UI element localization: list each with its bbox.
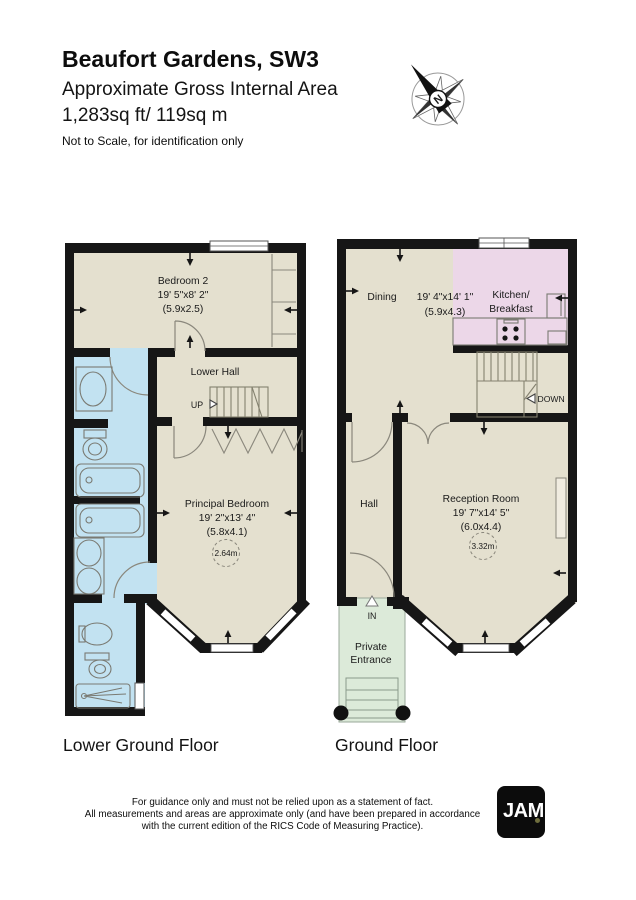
reception-ceiling-height: 3.32m <box>471 541 494 551</box>
reception-dims-imperial: 19' 7"x14' 5" <box>453 508 510 519</box>
principal-bedroom-dims-imperial: 19' 2"x13' 4" <box>199 513 256 524</box>
bedroom2-label: Bedroom 2 <box>158 276 209 287</box>
dining-dims-metric: (5.9x4.3) <box>425 307 466 318</box>
kitchen-label-line1: Kitchen/ <box>492 290 529 301</box>
compass-rose-icon: N <box>386 45 483 144</box>
pillar-symbol <box>396 706 411 721</box>
lower-ground-plan: Bedroom 2 19' 5"x8' 2" (5.9x2.5) Lower H… <box>65 241 306 716</box>
reception-label: Reception Room <box>443 494 520 505</box>
floorplan-page: Beaufort Gardens, SW3 Approximate Gross … <box>0 0 636 900</box>
alcove-recess <box>556 478 566 538</box>
hall-floor <box>337 422 402 605</box>
dining-label: Dining <box>367 292 396 303</box>
dining-dims-imperial: 19' 4"x14' 1" <box>417 292 474 303</box>
kitchen-label-line2: Breakfast <box>489 304 533 315</box>
bathroom-strip-lower-floor <box>65 598 145 716</box>
ground-plan: Dining 19' 4"x14' 1" (5.9x4.3) Kitchen/ … <box>334 238 578 722</box>
principal-bedroom-label: Principal Bedroom <box>185 499 269 510</box>
bathroom-strip-upper-floor <box>65 348 157 604</box>
principal-bedroom-dims-metric: (5.8x4.1) <box>207 527 248 538</box>
down-label: DOWN <box>538 394 565 404</box>
bedroom2-dims-imperial: 19' 5"x8' 2" <box>158 290 209 301</box>
floorplan-drawing: Bedroom 2 19' 5"x8' 2" (5.9x2.5) Lower H… <box>0 0 636 900</box>
pillar-symbol <box>334 706 349 721</box>
hall-label: Hall <box>360 499 378 510</box>
private-entrance-label-line1: Private <box>355 642 387 653</box>
private-entrance-label-line2: Entrance <box>350 655 391 666</box>
bedroom2-dims-metric: (5.9x2.5) <box>163 304 204 315</box>
window-symbol <box>135 683 144 709</box>
lower-hall-label: Lower Hall <box>191 367 240 378</box>
principal-ceiling-height: 2.64m <box>214 548 237 558</box>
in-label: IN <box>368 611 377 621</box>
up-label: UP <box>191 400 203 410</box>
reception-dims-metric: (6.0x4.4) <box>461 522 502 533</box>
